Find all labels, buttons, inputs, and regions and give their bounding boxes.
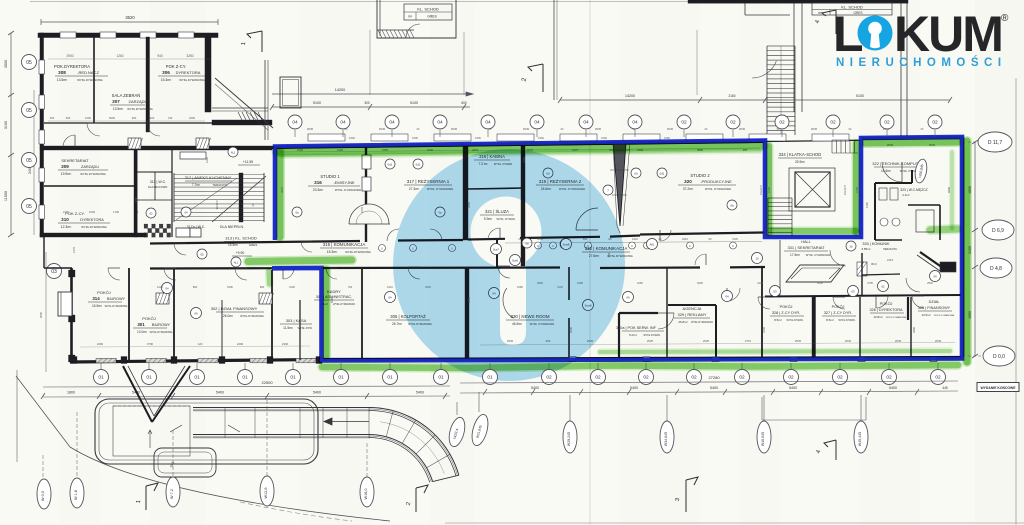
svg-text:04: 04 (632, 120, 638, 126)
svg-text:2490: 2490 (237, 342, 244, 346)
svg-text:5400: 5400 (889, 386, 897, 390)
svg-text:DYREKTORA: DYREKTORA (80, 218, 104, 222)
svg-text:02: 02 (779, 120, 785, 126)
svg-text:02: 02 (691, 375, 697, 381)
svg-text:1080: 1080 (517, 285, 523, 289)
svg-text:10x16.5: 10x16.5 (215, 200, 219, 210)
svg-text:05: 05 (200, 253, 204, 257)
svg-text:2130: 2130 (557, 285, 563, 289)
svg-text:1800: 1800 (67, 391, 75, 395)
svg-text:1700: 1700 (113, 210, 119, 214)
svg-text:27.3m²: 27.3m² (409, 187, 420, 191)
svg-text:13.0m²: 13.0m² (137, 330, 147, 334)
svg-text:W45,445: W45,445 (858, 432, 862, 446)
svg-text:AL3: AL3 (231, 152, 236, 155)
svg-text:01: 01 (487, 375, 493, 381)
svg-text:329 | REKLAMY: 329 | REKLAMY (677, 312, 706, 317)
svg-text:700: 700 (348, 285, 353, 289)
svg-text:WYKŁ. DYWANOWA: WYKŁ. DYWANOWA (335, 188, 361, 192)
svg-text:POKÓJ: POKÓJ (142, 316, 156, 321)
svg-text:5100: 5100 (313, 101, 321, 105)
svg-text:WYKŁ.DYWANOWA: WYKŁ.DYWANOWA (77, 78, 103, 82)
svg-text:04: 04 (165, 287, 169, 291)
svg-text:311 | W.C.: 311 | W.C. (150, 180, 166, 184)
svg-text:WYKŁ.DYWANOWA: WYKŁ.DYWANOWA (345, 250, 371, 254)
svg-text:0d: 0d (634, 172, 638, 176)
svg-text:1500: 1500 (475, 136, 481, 140)
svg-text:01: 01 (387, 375, 393, 381)
svg-text:POK Z-CY.: POK Z-CY. (65, 211, 85, 216)
svg-text:12.3m²: 12.3m² (61, 225, 72, 229)
svg-text:2100: 2100 (968, 246, 972, 254)
svg-text:02: 02 (681, 120, 687, 126)
svg-text:01: 01 (338, 375, 344, 381)
svg-text:04: 04 (725, 295, 729, 299)
svg-text:13.5m²: 13.5m² (113, 107, 124, 111)
svg-text:13.5m²: 13.5m² (921, 313, 930, 317)
svg-text:310: 310 (61, 217, 69, 222)
svg-text:4720: 4720 (732, 237, 738, 241)
svg-text:1050: 1050 (637, 281, 643, 285)
svg-text:300: 300 (364, 101, 370, 105)
svg-text:KUM: KUM (894, 6, 1002, 62)
svg-text:04: 04 (292, 120, 298, 126)
svg-text:1610: 1610 (632, 237, 638, 241)
svg-text:2900: 2900 (66, 54, 73, 58)
svg-text:316: 316 (314, 180, 322, 185)
svg-text:02: 02 (643, 375, 649, 381)
svg-text:2525: 2525 (647, 339, 654, 343)
svg-text:0d1: 0d1 (388, 163, 393, 167)
svg-text:14200: 14200 (625, 94, 635, 98)
svg-text:2545: 2545 (845, 339, 852, 343)
svg-text:AL1: AL1 (234, 261, 239, 265)
svg-text:5100: 5100 (856, 94, 864, 98)
svg-text:15.3m²: 15.3m² (327, 250, 338, 254)
svg-text:900: 900 (607, 252, 611, 257)
svg-text:04: 04 (340, 120, 346, 126)
svg-text:1080: 1080 (522, 157, 526, 163)
svg-text:3100: 3100 (4, 121, 8, 129)
svg-text:334 | KLATKA-SCHOD: 334 | KLATKA-SCHOD (779, 152, 822, 157)
svg-text:WYKŁ.DYWANOWA: WYKŁ.DYWANOWA (80, 172, 106, 176)
svg-text:2525: 2525 (703, 339, 710, 343)
svg-text:BIUROWY: BIUROWY (107, 297, 126, 301)
svg-text:600: 600 (66, 116, 71, 120)
svg-text:940: 940 (157, 54, 163, 58)
svg-text:AGENCJA: AGENCJA (683, 306, 702, 311)
svg-text:0a: 0a (525, 242, 529, 246)
svg-text:2200: 2200 (189, 116, 195, 120)
svg-text:323 | W.C.MĘŻCZ: 323 | W.C.MĘŻCZ (900, 187, 927, 192)
svg-text:NIERUCHOMOŚCI: NIERUCHOMOŚCI (836, 56, 1007, 69)
svg-text:1810: 1810 (682, 237, 688, 241)
svg-text:1500: 1500 (349, 136, 355, 140)
svg-text:01: 01 (146, 375, 152, 381)
svg-text:TERAKOTA: TERAKOTA (883, 247, 897, 251)
svg-text:ZARZĄDU: ZARZĄDU (129, 99, 148, 104)
svg-text:307: 307 (112, 99, 120, 104)
svg-text:800: 800 (260, 285, 265, 289)
svg-text:2890: 2890 (912, 327, 916, 333)
svg-text:D 11,7: D 11,7 (988, 140, 1003, 146)
svg-text:2490: 2490 (97, 342, 104, 346)
svg-text:314: 314 (92, 296, 100, 301)
svg-text:328 | Z-CY DYR.: 328 | Z-CY DYR. (772, 311, 800, 315)
svg-text:4050: 4050 (39, 311, 43, 318)
svg-text:WYKŁ.DYWAN.: WYKŁ.DYWAN. (644, 334, 661, 337)
svg-text:DLA PRACOWN.: DLA PRACOWN. (148, 185, 168, 189)
svg-text:19.9m²: 19.9m² (61, 172, 72, 176)
svg-text:WYKŁ.DYWANOWA: WYKŁ.DYWANOWA (179, 78, 205, 82)
svg-text:2545: 2545 (895, 339, 902, 343)
svg-text:306: 306 (162, 70, 170, 75)
svg-text:15.3m²: 15.3m² (161, 78, 172, 82)
svg-text:12.8m²: 12.8m² (873, 315, 882, 319)
svg-text:1500: 1500 (412, 136, 418, 140)
svg-text:26.0m²: 26.0m² (223, 314, 233, 318)
svg-text:2300: 2300 (282, 342, 289, 346)
svg-text:120: 120 (198, 342, 203, 346)
svg-text:2050: 2050 (467, 202, 471, 208)
svg-text:5400: 5400 (416, 391, 424, 395)
svg-text:1500: 1500 (538, 136, 544, 140)
svg-text:320: 320 (684, 179, 692, 184)
svg-text:02: 02 (935, 375, 941, 381)
svg-text:02: 02 (595, 375, 601, 381)
svg-text:5400: 5400 (531, 386, 539, 390)
svg-text:02: 02 (730, 120, 736, 126)
svg-text:HALL: HALL (801, 240, 811, 244)
svg-text:WYKŁ.DYWANOWA: WYKŁ.DYWANOWA (934, 314, 955, 317)
svg-text:14200: 14200 (335, 88, 346, 92)
svg-text:-RED.NACZ: -RED.NACZ (77, 70, 99, 75)
svg-text:®: ® (1001, 13, 1009, 24)
svg-text:2545: 2545 (811, 127, 818, 131)
svg-text:2500: 2500 (425, 285, 431, 289)
svg-text:ZARZĄDU: ZARZĄDU (81, 165, 99, 169)
svg-text:02: 02 (830, 120, 836, 126)
svg-text:W34,645: W34,645 (664, 432, 668, 446)
svg-text:1090: 1090 (855, 187, 859, 193)
svg-text:13.5m²: 13.5m² (57, 78, 68, 82)
svg-text:SALA ZEBRAŃ: SALA ZEBRAŃ (112, 93, 141, 98)
svg-text:04: 04 (389, 120, 395, 126)
svg-text:2545: 2545 (927, 281, 933, 285)
svg-text:DYREKTORA: DYREKTORA (176, 70, 201, 75)
svg-text:37.2m²: 37.2m² (683, 187, 694, 191)
svg-text:3025: 3025 (280, 187, 284, 193)
svg-text:0a: 0a (730, 204, 734, 208)
svg-text:02: 02 (546, 375, 552, 381)
svg-text:D 4,8: D 4,8 (990, 266, 1002, 272)
svg-text:2160: 2160 (728, 94, 735, 98)
svg-text:01: 01 (290, 375, 296, 381)
svg-text:0d1: 0d1 (416, 163, 421, 167)
svg-text:01: 01 (194, 375, 200, 381)
svg-text:5400: 5400 (313, 391, 321, 395)
svg-text:8.5m²: 8.5m² (826, 318, 834, 322)
svg-text:2170: 2170 (72, 247, 76, 253)
svg-text:2.2m²: 2.2m² (902, 193, 909, 197)
svg-text:7.7m²: 7.7m² (192, 183, 200, 187)
svg-text:05: 05 (26, 60, 32, 66)
svg-text:02: 02 (149, 212, 153, 216)
svg-text:01: 01 (242, 375, 248, 381)
svg-text:01: 01 (98, 375, 104, 381)
svg-text:1010: 1010 (387, 285, 393, 289)
svg-text:POK.DYREKTORA: POK.DYREKTORA (54, 64, 90, 69)
svg-text:1260: 1260 (116, 54, 123, 58)
svg-text:2545: 2545 (451, 127, 458, 131)
svg-text:WYKŁ.DYW.: WYKŁ.DYW. (298, 326, 313, 330)
svg-text:04: 04 (583, 120, 589, 126)
svg-text:W40,045: W40,045 (761, 432, 765, 446)
svg-text:22500: 22500 (261, 380, 273, 385)
svg-text:02: 02 (886, 375, 892, 381)
svg-text:2000: 2000 (569, 327, 573, 333)
svg-text:GRES: GRES (249, 243, 258, 247)
svg-text:23.3m²: 23.3m² (313, 188, 324, 192)
svg-text:5400: 5400 (216, 391, 224, 395)
svg-text:WYKŁ.DYWANOWA: WYKŁ.DYWANOWA (127, 107, 153, 111)
svg-text:1000: 1000 (665, 317, 669, 323)
svg-text:02: 02 (739, 375, 745, 381)
svg-text:4850: 4850 (968, 311, 972, 319)
svg-text:POK Z-CY.: POK Z-CY. (166, 64, 186, 69)
svg-text:W 7,2: W 7,2 (170, 489, 174, 499)
svg-text:WYKŁ.DYWANOWA: WYKŁ.DYWANOWA (240, 314, 264, 318)
svg-text:+9.90: +9.90 (236, 251, 245, 255)
svg-text:5000: 5000 (109, 116, 115, 120)
svg-text:326 | DYREKTORA: 326 | DYREKTORA (870, 308, 903, 312)
svg-text:26.7m²: 26.7m² (392, 322, 402, 326)
svg-text:POKÓJ: POKÓJ (880, 301, 893, 306)
svg-text:W.C: W.C (871, 262, 877, 266)
svg-text:3205: 3205 (467, 297, 471, 303)
svg-text:10x16.5: 10x16.5 (843, 185, 847, 195)
svg-text:5.0m²: 5.0m² (629, 333, 637, 337)
svg-text:301: 301 (137, 322, 145, 327)
svg-text:GRES: GRES (427, 15, 437, 19)
svg-text:W 1,8: W 1,8 (74, 490, 78, 500)
svg-text:1262: 1262 (205, 157, 209, 163)
svg-text:WYKŁ.DYWANOWA: WYKŁ.DYWANOWA (333, 303, 355, 306)
svg-text:800: 800 (193, 285, 198, 289)
svg-text:3130: 3130 (757, 281, 763, 285)
svg-text:2545: 2545 (307, 127, 314, 131)
svg-text:05: 05 (26, 158, 32, 164)
svg-text:04: 04 (388, 296, 392, 300)
svg-text:W29,245: W29,245 (567, 432, 571, 446)
svg-text:315 | KOMUNIKACJA: 315 | KOMUNIKACJA (323, 242, 366, 247)
svg-text:02: 02 (884, 120, 890, 126)
svg-text:5100: 5100 (410, 101, 418, 105)
svg-text:02: 02 (881, 285, 885, 289)
svg-text:26.8m²: 26.8m² (678, 320, 687, 324)
svg-text:5040: 5040 (330, 297, 334, 303)
svg-text:WYKŁ.DYWANOWA: WYKŁ.DYWANOWA (105, 305, 128, 308)
svg-text:309: 309 (61, 164, 69, 169)
svg-text:302 | DZIAŁ FINANSOWY: 302 | DZIAŁ FINANSOWY (211, 306, 258, 311)
svg-text:D 0,0: D 0,0 (993, 354, 1005, 360)
svg-text:327 | Z-CY DYR.: 327 | Z-CY DYR. (824, 311, 852, 315)
svg-text:1570: 1570 (360, 207, 364, 213)
svg-text:730: 730 (168, 116, 173, 120)
svg-text:+11.55: +11.55 (243, 160, 253, 164)
svg-text:W18,0: W18,0 (364, 489, 368, 500)
svg-text:4800: 4800 (968, 186, 972, 194)
svg-text:03: 03 (51, 269, 57, 275)
svg-text:BIUROWY: BIUROWY (152, 323, 171, 327)
svg-text:WYKŁ. DYWANOWA: WYKŁ. DYWANOWA (806, 253, 831, 257)
svg-text:2545: 2545 (595, 127, 602, 131)
svg-text:330a | POK SERW. INF: 330a | POK SERW. INF (616, 326, 657, 330)
svg-text:3620: 3620 (125, 15, 135, 20)
svg-text:03: 03 (773, 290, 777, 294)
svg-text:600: 600 (461, 101, 467, 105)
svg-text:308: 308 (58, 70, 66, 75)
svg-text:2545: 2545 (507, 339, 514, 343)
svg-text:WYKŁ.DYWANOWA: WYKŁ.DYWANOWA (81, 225, 107, 229)
svg-text:-EMISYJNE: -EMISYJNE (333, 180, 355, 185)
svg-text:11.5m²: 11.5m² (283, 326, 293, 330)
svg-text:POKÓJ: POKÓJ (780, 304, 793, 309)
svg-text:10: 10 (755, 257, 759, 261)
svg-text:1000: 1000 (817, 281, 823, 285)
svg-text:04: 04 (184, 211, 188, 215)
svg-text:900: 900 (132, 116, 137, 120)
svg-text:14.6m²: 14.6m² (881, 169, 891, 173)
svg-text:321 | ŚLUZA: 321 | ŚLUZA (485, 209, 509, 214)
svg-text:2545: 2545 (523, 127, 530, 131)
svg-text:WYKŁ.DYWANOWA: WYKŁ.DYWANOWA (691, 321, 713, 324)
svg-text:05: 05 (26, 204, 32, 210)
svg-text:04: 04 (437, 120, 443, 126)
svg-text:5400: 5400 (789, 386, 797, 390)
svg-text:02: 02 (788, 375, 794, 381)
svg-text:5100: 5100 (227, 285, 233, 289)
svg-text:2545: 2545 (667, 127, 674, 131)
svg-text:POKÓJ: POKÓJ (97, 290, 111, 295)
svg-text:5400: 5400 (630, 386, 638, 390)
svg-text:25.9m²: 25.9m² (795, 160, 805, 164)
svg-text:1340: 1340 (865, 202, 869, 208)
svg-text:DLA NIEPEŁN.: DLA NIEPEŁN. (220, 225, 244, 229)
svg-text:1000: 1000 (89, 210, 95, 214)
svg-text:16.5m²: 16.5m² (92, 304, 102, 308)
svg-text:0a: 0a (295, 211, 299, 215)
svg-text:D 6,9: D 6,9 (992, 228, 1004, 234)
svg-text:1000: 1000 (85, 116, 91, 120)
svg-text:2525: 2525 (795, 339, 802, 343)
svg-text:1220: 1220 (157, 285, 163, 289)
svg-text:WYDANIE KOŃCOWE: WYDANIE KOŃCOWE (980, 385, 1016, 390)
svg-text:4500: 4500 (4, 60, 8, 68)
svg-text:KL. SCHOD: KL. SCHOD (417, 7, 439, 12)
svg-text:02: 02 (837, 375, 843, 381)
svg-text:10x16.5: 10x16.5 (759, 185, 763, 195)
svg-text:3790: 3790 (147, 342, 154, 346)
svg-text:04: 04 (933, 275, 937, 279)
svg-text:W 0,0: W 0,0 (41, 491, 45, 501)
svg-text:-PRODUKCYJNE: -PRODUKCYJNE (700, 179, 732, 184)
svg-text:2115: 2115 (887, 258, 893, 262)
svg-text:2715: 2715 (745, 339, 752, 343)
svg-text:04: 04 (485, 120, 491, 126)
svg-text:2735: 2735 (867, 281, 873, 285)
svg-text:2545: 2545 (739, 127, 746, 131)
svg-text:04: 04 (626, 296, 630, 300)
svg-text:DZIAŁ: DZIAŁ (929, 300, 940, 304)
svg-text:WYKŁ.DYWAN.: WYKŁ.DYWAN. (787, 319, 804, 322)
svg-text:Scw7: Scw7 (493, 249, 500, 252)
svg-text:WYKŁ.DYWANOWA: WYKŁ.DYWANOWA (886, 316, 907, 319)
svg-text:WYKŁ. DYWAN.: WYKŁ. DYWAN. (496, 217, 515, 221)
svg-text:STUDIO 2: STUDIO 2 (690, 173, 710, 178)
svg-text:11500: 11500 (4, 191, 8, 201)
svg-text:03: 03 (851, 290, 855, 294)
svg-text:Scw6: Scw6 (512, 260, 519, 263)
svg-text:2130: 2130 (289, 285, 295, 289)
svg-text:322 | TECHNIK-KOMPUTER: 322 | TECHNIK-KOMPUTER (872, 161, 924, 166)
svg-text:10: 10 (849, 245, 853, 249)
svg-text:5400: 5400 (710, 386, 718, 390)
svg-text:333 | KOMUNIK: 333 | KOMUNIK (862, 242, 890, 246)
svg-text:620: 620 (150, 116, 155, 120)
svg-text:5435: 5435 (697, 281, 703, 285)
svg-text:5.85m²: 5.85m² (862, 247, 871, 251)
svg-text:04: 04 (534, 120, 540, 126)
svg-text:0d1: 0d1 (660, 172, 665, 176)
svg-text:A01: A01 (650, 243, 655, 247)
svg-text:312 | ANEKS KUCHENNY: 312 | ANEKS KUCHENNY (185, 175, 232, 180)
svg-text:1035: 1035 (767, 187, 771, 193)
svg-text:3135: 3135 (762, 327, 766, 333)
svg-text:5.9m²: 5.9m² (484, 217, 492, 221)
svg-text:01: 01 (438, 375, 444, 381)
svg-text:STUDIO 1: STUDIO 1 (320, 174, 340, 179)
svg-text:04: 04 (194, 312, 198, 316)
svg-text:27280: 27280 (708, 375, 720, 380)
svg-text:300: 300 (50, 116, 55, 120)
svg-text:8.5m²: 8.5m² (774, 318, 782, 322)
svg-text:1500: 1500 (601, 136, 607, 140)
svg-text:17.5m²: 17.5m² (790, 253, 800, 257)
svg-text:WYKŁ.DYWANOWA: WYKŁ.DYWANOWA (150, 331, 173, 334)
svg-text:4800: 4800 (947, 187, 951, 193)
svg-text:2545: 2545 (379, 127, 386, 131)
svg-text:303 | KASA: 303 | KASA (286, 318, 307, 323)
svg-text:445: 445 (942, 386, 948, 390)
svg-text:05: 05 (26, 108, 32, 114)
svg-text:WYKŁ. DYWANOWA: WYKŁ. DYWANOWA (705, 187, 731, 191)
svg-text:W12,6: W12,6 (264, 488, 268, 499)
svg-text:WYKŁ.DYWAN.: WYKŁ.DYWAN. (839, 319, 856, 322)
svg-text:3250: 3250 (186, 54, 193, 58)
svg-text:SEKRETARIAT: SEKRETARIAT (61, 158, 89, 163)
svg-text:317a | W.C.: 317a | W.C. (187, 225, 206, 229)
svg-text:2545: 2545 (935, 339, 942, 343)
svg-text:313 | KL. SCHOD: 313 | KL. SCHOD (225, 236, 257, 241)
svg-text:46.5m²: 46.5m² (512, 322, 522, 326)
svg-text:1000: 1000 (134, 197, 138, 203)
svg-text:02: 02 (932, 120, 938, 126)
svg-text:331 | SEKRETARIAT: 331 | SEKRETARIAT (787, 245, 825, 250)
